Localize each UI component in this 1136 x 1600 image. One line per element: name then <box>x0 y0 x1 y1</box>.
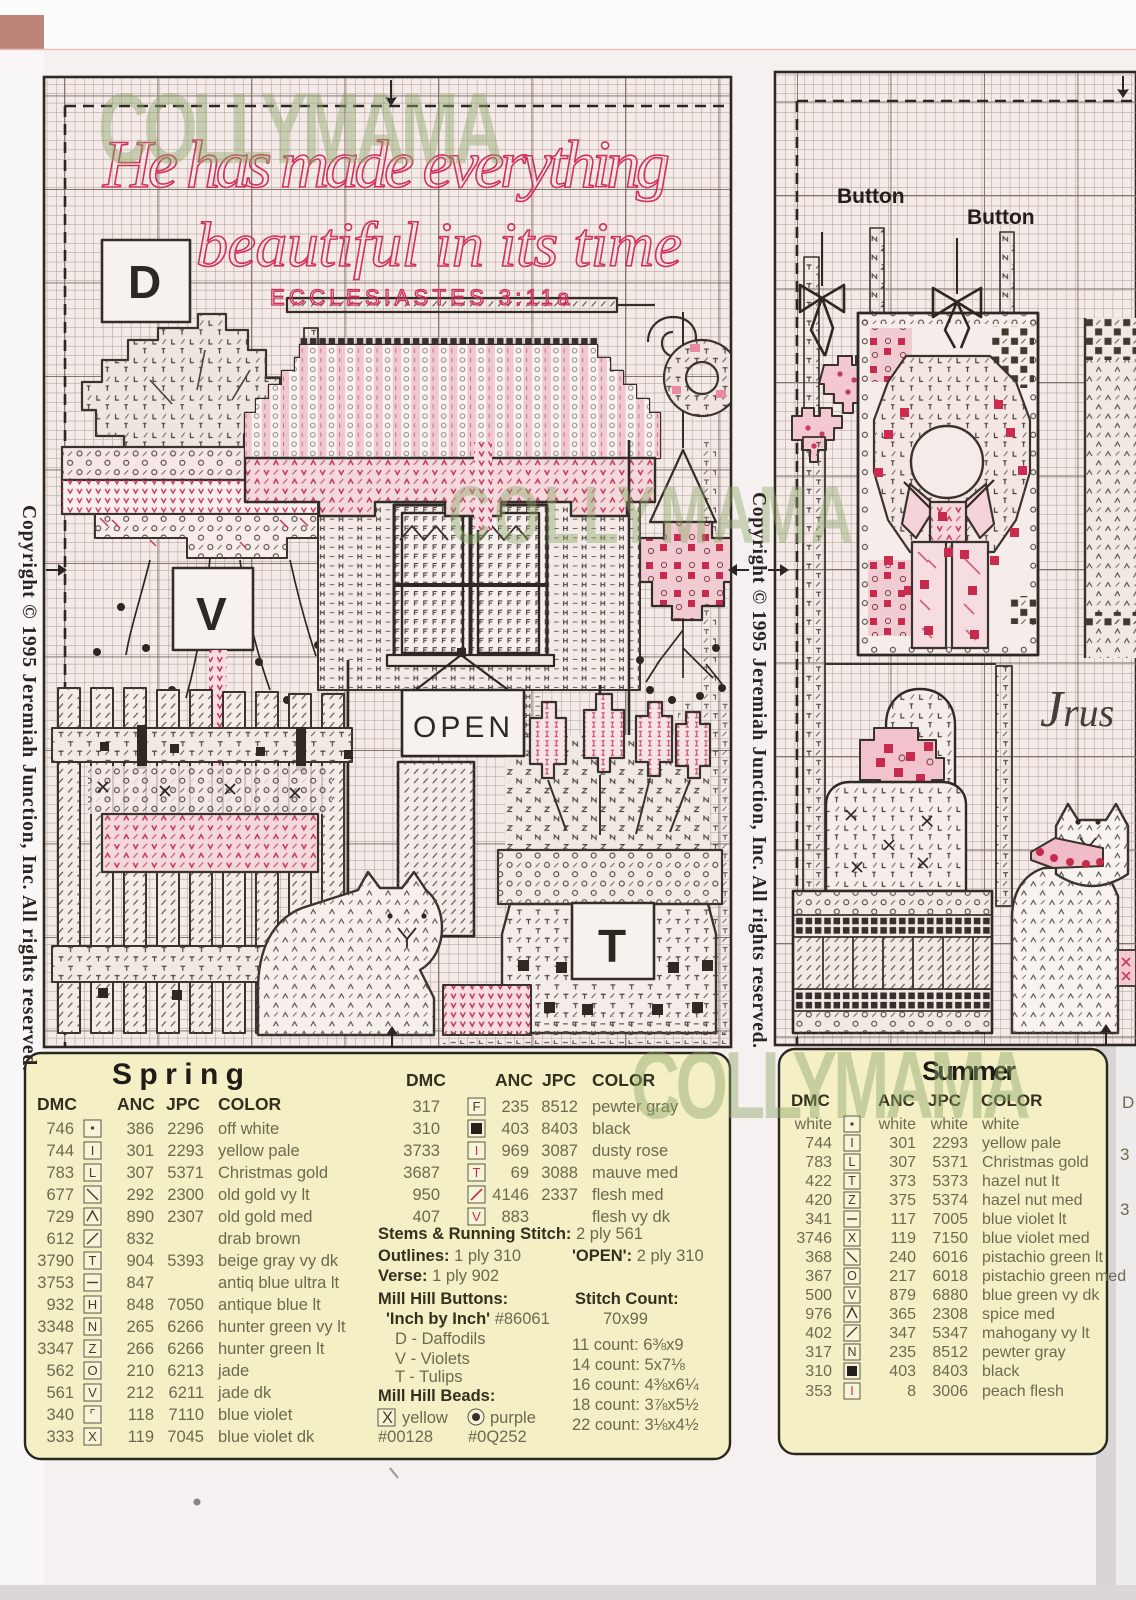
svg-text:11 count: 6⅜x9: 11 count: 6⅜x9 <box>572 1336 684 1354</box>
svg-text:T - Tulips: T - Tulips <box>395 1368 463 1386</box>
svg-text:T: T <box>473 1165 481 1180</box>
svg-text:X: X <box>848 1231 857 1245</box>
svg-text:500: 500 <box>805 1287 832 1304</box>
svg-text:COLOR: COLOR <box>218 1094 282 1114</box>
svg-text:402: 402 <box>805 1325 832 1342</box>
svg-text:333: 333 <box>46 1428 74 1446</box>
svg-text:black: black <box>982 1363 1020 1380</box>
svg-text:783: 783 <box>805 1154 832 1171</box>
svg-text:3087: 3087 <box>541 1142 578 1160</box>
svg-text:Copyright © 1995 Jeremiah Junc: Copyright © 1995 Jeremiah Junction, Inc.… <box>748 492 769 1048</box>
svg-text:pewter gray: pewter gray <box>982 1344 1066 1361</box>
svg-text:O: O <box>87 1363 97 1378</box>
svg-text:X: X <box>382 1409 393 1427</box>
svg-text:flesh vy dk: flesh vy dk <box>592 1208 671 1226</box>
svg-text:746: 746 <box>46 1120 74 1138</box>
svg-text:dusty rose: dusty rose <box>592 1142 668 1160</box>
svg-text:mauve med: mauve med <box>592 1164 678 1182</box>
svg-text:119: 119 <box>128 1428 154 1446</box>
svg-text:#00128: #00128 <box>378 1428 433 1446</box>
svg-text:783: 783 <box>46 1164 74 1182</box>
svg-text:beautiful in its time: beautiful in its time <box>196 209 682 280</box>
svg-text:879: 879 <box>889 1287 916 1304</box>
svg-text:pistachio green med: pistachio green med <box>982 1268 1126 1285</box>
svg-text:5393: 5393 <box>167 1252 204 1270</box>
svg-text:367: 367 <box>805 1268 832 1285</box>
svg-text:7050: 7050 <box>167 1296 204 1314</box>
svg-text:blue violet: blue violet <box>218 1406 293 1424</box>
svg-text:DMC: DMC <box>406 1070 446 1090</box>
svg-text:Stems & Running Stitch: 2 ply: Stems & Running Stitch: 2 ply 561 <box>378 1225 643 1243</box>
svg-text:blue green vy dk: blue green vy dk <box>982 1287 1100 1304</box>
svg-text:Z: Z <box>89 1341 97 1356</box>
svg-text:2307: 2307 <box>167 1208 204 1226</box>
svg-text:V: V <box>472 1209 481 1224</box>
svg-text:#0Q252: #0Q252 <box>468 1428 527 1446</box>
svg-text:4146: 4146 <box>492 1186 529 1204</box>
svg-text:ECCLESIASTES 3:11a: ECCLESIASTES 3:11a <box>270 285 575 310</box>
svg-text:Stitch Count:: Stitch Count: <box>575 1290 679 1308</box>
svg-text:976: 976 <box>805 1306 832 1323</box>
svg-text:off white: off white <box>218 1120 279 1138</box>
svg-text:7150: 7150 <box>932 1230 968 1247</box>
svg-text:N: N <box>847 1345 856 1359</box>
svg-text:I: I <box>850 1384 853 1398</box>
svg-text:JPC: JPC <box>542 1070 576 1090</box>
svg-text:210: 210 <box>126 1362 154 1380</box>
svg-text:I: I <box>91 1143 95 1158</box>
svg-text:22 count: 3⅛x4½: 22 count: 3⅛x4½ <box>572 1416 699 1434</box>
svg-text:353: 353 <box>805 1383 832 1400</box>
svg-text:peach flesh: peach flesh <box>982 1383 1064 1400</box>
svg-text:3347: 3347 <box>37 1340 74 1358</box>
svg-text:Verse: 1 ply 902: Verse: 1 ply 902 <box>378 1267 499 1285</box>
svg-text:Jrus: Jrus <box>1040 681 1114 738</box>
svg-text:D: D <box>1122 1093 1134 1112</box>
svg-text:6880: 6880 <box>932 1287 968 1304</box>
svg-text:848: 848 <box>126 1296 154 1314</box>
svg-text:old gold vy lt: old gold vy lt <box>218 1186 310 1204</box>
svg-text:266: 266 <box>126 1340 154 1358</box>
svg-text:14 count: 5x7⅛: 14 count: 5x7⅛ <box>572 1356 685 1374</box>
svg-text:blue violet med: blue violet med <box>982 1230 1090 1247</box>
svg-text:744: 744 <box>46 1142 74 1160</box>
svg-text:yellow pale: yellow pale <box>218 1142 300 1160</box>
svg-text:240: 240 <box>889 1249 916 1266</box>
svg-text:hunter green lt: hunter green lt <box>218 1340 325 1358</box>
svg-text:yellow: yellow <box>402 1409 448 1427</box>
svg-text:Mill Hill Buttons:: Mill Hill Buttons: <box>378 1290 508 1308</box>
svg-text:X: X <box>88 1429 97 1444</box>
svg-text:6018: 6018 <box>932 1268 968 1285</box>
svg-text:3687: 3687 <box>403 1164 440 1182</box>
svg-text:7005: 7005 <box>932 1211 968 1228</box>
svg-text:3: 3 <box>1120 1200 1129 1219</box>
svg-text:jade: jade <box>217 1362 249 1380</box>
svg-text:403: 403 <box>501 1120 529 1138</box>
svg-text:F: F <box>473 1099 481 1114</box>
svg-text:265: 265 <box>126 1318 154 1336</box>
svg-text:hazel nut med: hazel nut med <box>982 1192 1083 1209</box>
svg-text:310: 310 <box>412 1120 440 1138</box>
svg-text:6266: 6266 <box>167 1340 204 1358</box>
svg-text:969: 969 <box>501 1142 529 1160</box>
svg-text:8: 8 <box>907 1383 916 1400</box>
svg-text:6016: 6016 <box>932 1249 968 1266</box>
svg-text:5347: 5347 <box>932 1325 968 1342</box>
svg-text:883: 883 <box>501 1208 529 1226</box>
svg-text:407: 407 <box>412 1208 440 1226</box>
svg-text:3746: 3746 <box>796 1230 832 1247</box>
svg-text:2337: 2337 <box>541 1186 578 1204</box>
svg-text:black: black <box>592 1120 631 1138</box>
svg-text:3733: 3733 <box>403 1142 440 1160</box>
svg-text:ANC: ANC <box>495 1070 533 1090</box>
svg-text:V - Violets: V - Violets <box>395 1350 470 1368</box>
svg-text:V: V <box>196 588 227 640</box>
svg-text:2308: 2308 <box>932 1306 968 1323</box>
svg-text:ANC: ANC <box>117 1094 155 1114</box>
svg-text:70x99: 70x99 <box>603 1310 648 1328</box>
svg-text:8403: 8403 <box>541 1120 578 1138</box>
svg-text:8512: 8512 <box>541 1098 578 1116</box>
svg-text:8512: 8512 <box>932 1344 968 1361</box>
svg-text:8403: 8403 <box>932 1363 968 1380</box>
svg-text:O: O <box>847 1269 857 1283</box>
svg-text:T: T <box>89 1253 97 1268</box>
svg-text:119: 119 <box>890 1230 916 1247</box>
svg-text:DMC: DMC <box>37 1094 77 1114</box>
svg-text:Button: Button <box>837 185 905 208</box>
svg-text:729: 729 <box>46 1208 74 1226</box>
svg-text:T: T <box>848 1174 856 1188</box>
svg-text:2293: 2293 <box>167 1142 204 1160</box>
svg-text:OPEN: OPEN <box>413 711 514 744</box>
svg-text:217: 217 <box>889 1268 916 1285</box>
svg-text:612: 612 <box>46 1230 74 1248</box>
svg-text:5371: 5371 <box>932 1154 968 1171</box>
svg-text:Copyright © 1995 Jeremiah Junc: Copyright © 1995 Jeremiah Junction, Inc.… <box>18 505 39 1071</box>
svg-text:flesh med: flesh med <box>592 1186 664 1204</box>
svg-text:375: 375 <box>889 1192 916 1209</box>
svg-text:18 count: 3⅞x5½: 18 count: 3⅞x5½ <box>572 1396 699 1414</box>
svg-text:⌜: ⌜ <box>89 1407 95 1422</box>
svg-text:mahogany vy lt: mahogany vy lt <box>982 1325 1090 1342</box>
svg-text:368: 368 <box>805 1249 832 1266</box>
svg-text:blue violet dk: blue violet dk <box>218 1428 315 1446</box>
svg-text:118: 118 <box>128 1406 154 1424</box>
svg-text:307: 307 <box>889 1154 916 1171</box>
svg-text:I: I <box>475 1143 479 1158</box>
svg-text:235: 235 <box>501 1098 529 1116</box>
svg-text:890: 890 <box>126 1208 154 1226</box>
svg-text:Outlines: 1 ply 310: Outlines: 1 ply 310 <box>378 1247 521 1265</box>
svg-text:COLLYMAMA: COLLYMAMA <box>98 74 504 185</box>
svg-text:pistachio green lt: pistachio green lt <box>982 1249 1104 1266</box>
svg-text:69: 69 <box>511 1164 529 1182</box>
svg-text:317: 317 <box>805 1344 832 1361</box>
svg-text:3006: 3006 <box>932 1383 968 1400</box>
svg-text:310: 310 <box>805 1363 832 1380</box>
svg-text:Christmas gold: Christmas gold <box>982 1154 1089 1171</box>
svg-text:403: 403 <box>889 1363 916 1380</box>
svg-text:235: 235 <box>889 1344 916 1361</box>
svg-text:JPC: JPC <box>166 1094 200 1114</box>
svg-text:422: 422 <box>805 1173 832 1190</box>
svg-text:904: 904 <box>126 1252 154 1270</box>
svg-text:6213: 6213 <box>167 1362 204 1380</box>
svg-text:212: 212 <box>126 1384 154 1402</box>
svg-text:V: V <box>88 1385 97 1400</box>
svg-text:832: 832 <box>126 1230 154 1248</box>
svg-text:L: L <box>89 1165 96 1180</box>
svg-text:antique blue lt: antique blue lt <box>218 1296 321 1314</box>
svg-text:562: 562 <box>46 1362 74 1380</box>
svg-text:3790: 3790 <box>37 1252 74 1270</box>
svg-text:'Inch by Inch' #86061: 'Inch by Inch' #86061 <box>386 1310 550 1328</box>
svg-text:365: 365 <box>889 1306 916 1323</box>
svg-text:'OPEN': 2 ply 310: 'OPEN': 2 ply 310 <box>572 1247 704 1265</box>
svg-text:373: 373 <box>889 1173 916 1190</box>
svg-text:340: 340 <box>46 1406 74 1424</box>
svg-text:117: 117 <box>890 1211 916 1228</box>
svg-text:Christmas gold: Christmas gold <box>218 1164 328 1182</box>
svg-text:6211: 6211 <box>169 1384 204 1402</box>
svg-text:847: 847 <box>126 1274 154 1292</box>
svg-text:V: V <box>848 1288 857 1302</box>
svg-text:7045: 7045 <box>167 1428 204 1446</box>
svg-text:386: 386 <box>126 1120 154 1138</box>
svg-text:5373: 5373 <box>932 1173 968 1190</box>
svg-text:6266: 6266 <box>167 1318 204 1336</box>
svg-text:3: 3 <box>1120 1145 1129 1164</box>
svg-text:292: 292 <box>126 1186 154 1204</box>
svg-text:341: 341 <box>805 1211 832 1228</box>
svg-text:purple: purple <box>490 1409 536 1427</box>
svg-text:hunter green vy lt: hunter green vy lt <box>218 1318 346 1336</box>
svg-text:T: T <box>598 920 626 972</box>
svg-text:antiq blue ultra lt: antiq blue ultra lt <box>218 1274 339 1292</box>
svg-text:N: N <box>88 1319 97 1334</box>
svg-text:beige gray vy dk: beige gray vy dk <box>218 1252 339 1270</box>
svg-text:3088: 3088 <box>541 1164 578 1182</box>
svg-text:H: H <box>88 1297 97 1312</box>
svg-text:Z: Z <box>848 1193 856 1207</box>
svg-text:2296: 2296 <box>167 1120 204 1138</box>
svg-text:677: 677 <box>46 1186 74 1204</box>
svg-text:old gold med: old gold med <box>218 1208 312 1226</box>
svg-text:3348: 3348 <box>37 1318 74 1336</box>
svg-text:3753: 3753 <box>37 1274 74 1292</box>
svg-text:950: 950 <box>412 1186 440 1204</box>
svg-text:347: 347 <box>889 1325 916 1342</box>
svg-text:307: 307 <box>126 1164 154 1182</box>
svg-text:D - Daffodils: D - Daffodils <box>395 1330 485 1348</box>
svg-text:COLLYMAMA: COLLYMAMA <box>631 1031 1031 1139</box>
svg-text:561: 561 <box>46 1384 74 1402</box>
svg-text:Mill Hill Beads:: Mill Hill Beads: <box>378 1387 495 1405</box>
svg-text:Button: Button <box>967 206 1035 229</box>
svg-text:L: L <box>849 1155 856 1169</box>
svg-text:blue violet lt: blue violet lt <box>982 1211 1067 1228</box>
svg-text:317: 317 <box>412 1098 440 1116</box>
svg-text:Spring: Spring <box>112 1058 250 1091</box>
svg-text:932: 932 <box>46 1296 74 1314</box>
svg-text:301: 301 <box>126 1142 154 1160</box>
svg-text:7110: 7110 <box>169 1406 204 1424</box>
svg-text:420: 420 <box>805 1192 832 1209</box>
svg-text:hazel nut lt: hazel nut lt <box>982 1173 1060 1190</box>
svg-text:jade dk: jade dk <box>217 1384 272 1402</box>
svg-text:COLLYMAMA: COLLYMAMA <box>448 470 853 562</box>
svg-text:D: D <box>128 256 161 308</box>
svg-text:spice med: spice med <box>982 1306 1055 1323</box>
svg-text:16 count: 4⅜x6¼: 16 count: 4⅜x6¼ <box>572 1376 699 1394</box>
svg-text:5374: 5374 <box>932 1192 968 1209</box>
svg-text:2300: 2300 <box>167 1186 204 1204</box>
svg-text:5371: 5371 <box>167 1164 204 1182</box>
svg-text:drab brown: drab brown <box>218 1230 301 1248</box>
